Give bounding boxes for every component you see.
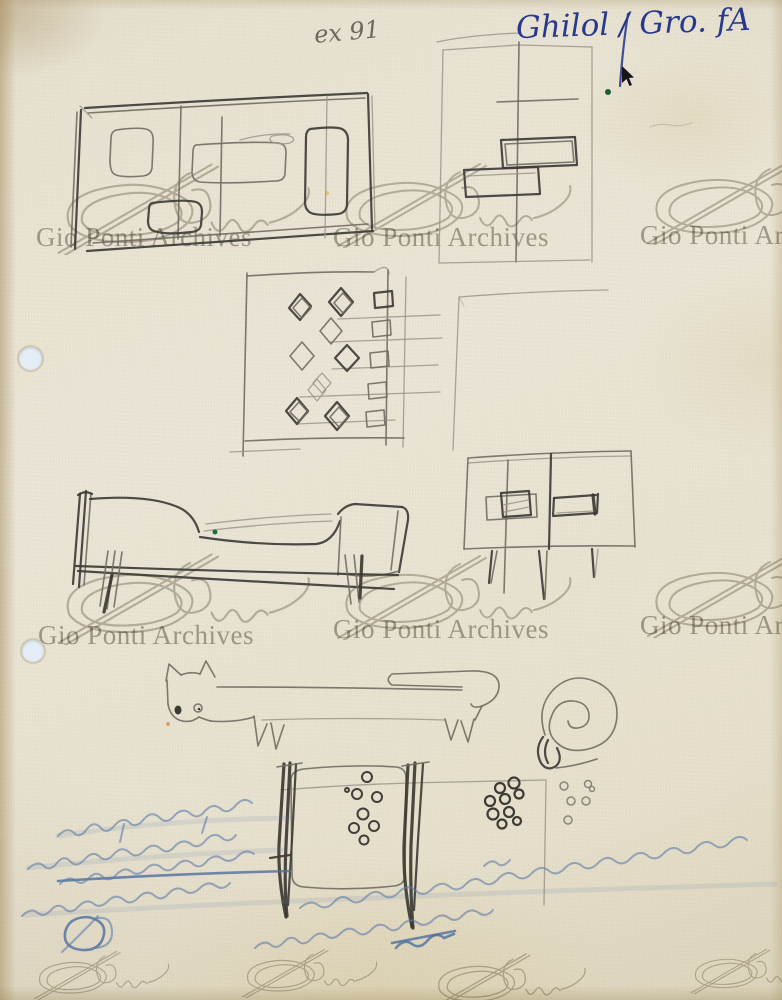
cat-figure-sketch — [166, 661, 499, 749]
hole-punch — [22, 640, 44, 662]
diamond-pattern-panel-sketch — [230, 267, 442, 456]
green-speck — [605, 89, 611, 95]
dot-cluster-light — [560, 781, 595, 825]
pencil-annotation: ex 91 — [313, 15, 381, 49]
shelf-composition-study-sketch — [437, 33, 692, 263]
cabinet-front-elevation-sketch — [71, 93, 375, 251]
mirrored-verso-handwriting — [22, 800, 775, 952]
sideboard-with-two-doors-sketch — [464, 451, 635, 599]
cursor-artifact — [622, 66, 634, 86]
sofa-daybed-profile-sketch — [73, 491, 408, 612]
faint-rectangle-outline-sketch — [453, 290, 608, 450]
dot-cluster-dark — [485, 778, 524, 829]
scanned-sketch-page: Gio Ponti Archives Gio Ponti Archives Gi… — [0, 0, 782, 1000]
hole-punch — [19, 347, 42, 370]
snail-spiral-sketch — [538, 678, 617, 768]
